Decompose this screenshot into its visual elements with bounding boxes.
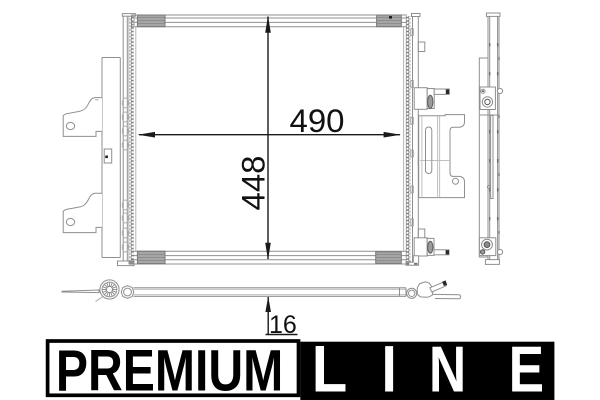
svg-text:16: 16 xyxy=(269,311,297,339)
svg-text:N: N xyxy=(429,334,466,400)
svg-text:L: L xyxy=(312,333,348,400)
svg-text:E: E xyxy=(509,332,544,400)
svg-text:490: 490 xyxy=(290,103,345,139)
svg-text:I: I xyxy=(381,332,396,400)
svg-text:448: 448 xyxy=(236,156,272,211)
svg-text:PREMIUM: PREMIUM xyxy=(56,339,283,400)
